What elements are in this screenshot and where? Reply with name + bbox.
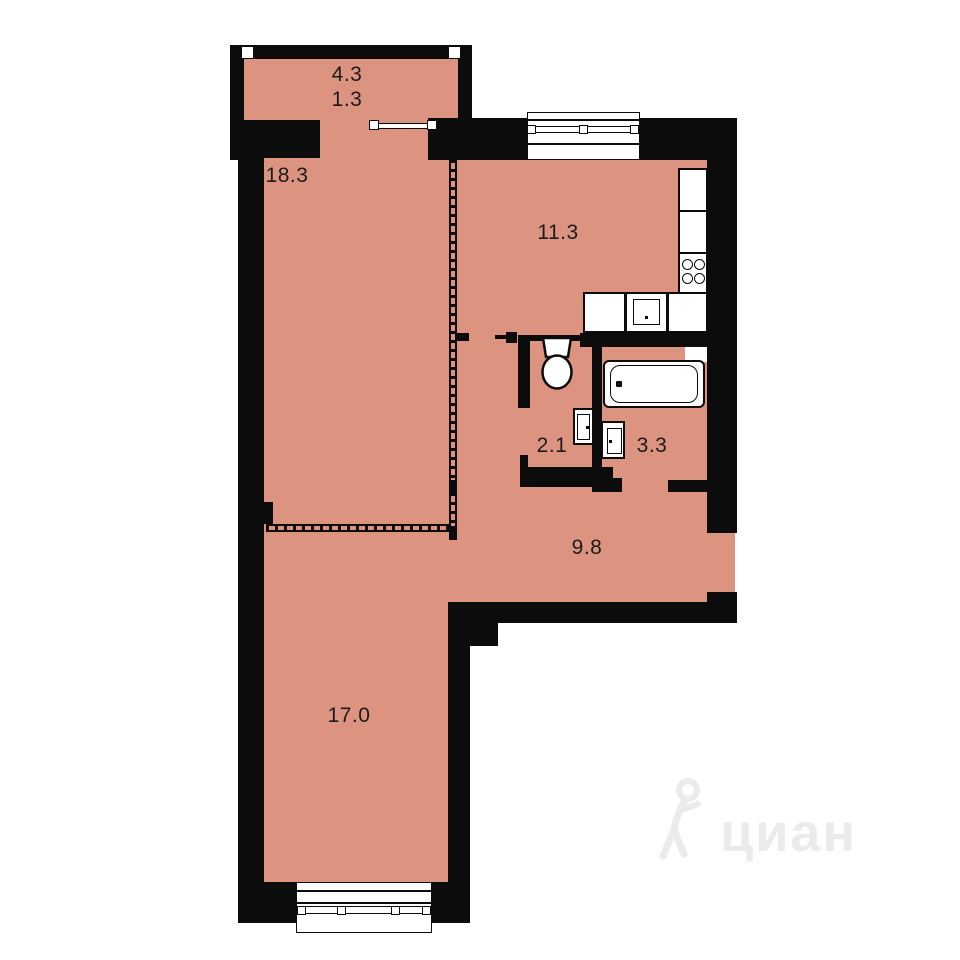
room-label-bedroom: 17.0 (328, 704, 371, 728)
burner-icon (682, 273, 693, 284)
floor-left-wing (264, 155, 448, 882)
wall-bedroom-right (448, 602, 470, 923)
kitchen-cabinet-3 (583, 292, 626, 333)
kitchen-sink (633, 299, 660, 325)
bathtub-fixture (603, 360, 705, 408)
wall-stub-line (495, 335, 508, 339)
kitchen-sink-drain (645, 316, 648, 319)
window-sill-line (528, 119, 639, 121)
partition-tab-right (457, 333, 469, 341)
washbasin-wc (573, 408, 594, 445)
burner-icon (694, 273, 705, 284)
window-mullion (427, 120, 437, 130)
room-label-balcony-reduced: 1.3 (332, 88, 363, 112)
window-mullion (527, 125, 536, 134)
partition-cap-lower (449, 526, 457, 540)
room-label-balcony-total: 4.3 (332, 63, 363, 87)
bathtub-inner (610, 365, 698, 403)
wall-exterior-right (707, 118, 737, 533)
watermark: циан (652, 776, 857, 868)
wall-top-left-block (230, 120, 320, 158)
partition-tab-left (264, 502, 273, 524)
wall-corner-block (470, 602, 498, 646)
kitchen-cabinet-1 (678, 168, 708, 212)
watermark-brand-text: циан (720, 802, 857, 864)
window-mullion (422, 906, 431, 915)
kitchen-corner-cabinet (667, 292, 708, 333)
kitchen-cabinet-2 (678, 210, 708, 254)
window-frame (528, 126, 639, 133)
washbasin-bath (601, 421, 625, 459)
wall-balcony-top (230, 45, 472, 59)
window-mullion (579, 125, 588, 134)
bathtub-faucet (616, 381, 622, 387)
window-kitchen (527, 112, 640, 160)
window-mullion (630, 125, 639, 134)
partition-cap-upper (449, 480, 457, 494)
room-label-living-room: 18.3 (266, 164, 309, 188)
balcony-glazing-bar (377, 123, 429, 129)
wall-exterior-left (238, 155, 264, 923)
room-label-hallway: 9.8 (572, 536, 603, 560)
window-bedroom (296, 882, 432, 933)
wall-wc-bottom (520, 467, 613, 487)
window-mullion (391, 906, 400, 915)
floor-plan: 4.3 1.3 18.3 11.3 2.1 3.3 9.8 17.0 циан (0, 0, 960, 960)
wall-wc-bottom-stub (520, 455, 528, 469)
room-label-bathroom: 3.3 (637, 434, 668, 458)
window-mullion (297, 906, 306, 915)
watermark-person-icon (652, 776, 714, 868)
balcony-parapet-gap-left (242, 47, 253, 58)
partition-dashed-vertical (449, 160, 457, 528)
balcony-parapet-gap-right (449, 47, 460, 58)
window-sill-line (297, 902, 431, 904)
partition-dashed-horizontal (266, 524, 449, 532)
kitchen-sink-cabinet (625, 292, 668, 333)
stove (678, 252, 708, 294)
wall-top-segment-1 (428, 118, 528, 160)
window-sill-line (297, 890, 431, 892)
floor-entrance (707, 533, 735, 593)
wall-wc-left (518, 338, 530, 408)
window-mullion (337, 906, 346, 915)
washbasin-bath-tap (609, 440, 612, 443)
window-sill-line (528, 143, 639, 145)
window-mullion (369, 120, 379, 130)
room-label-toilet: 2.1 (537, 434, 568, 458)
burner-icon (694, 259, 705, 270)
washbasin-wc-tap (586, 426, 589, 429)
toilet-fixture (536, 335, 578, 391)
window-frame (297, 906, 431, 914)
burner-icon (682, 259, 693, 270)
balcony-glazing (369, 120, 437, 132)
wall-bath-bottom-stub (668, 480, 707, 492)
room-label-kitchen: 11.3 (537, 221, 578, 245)
